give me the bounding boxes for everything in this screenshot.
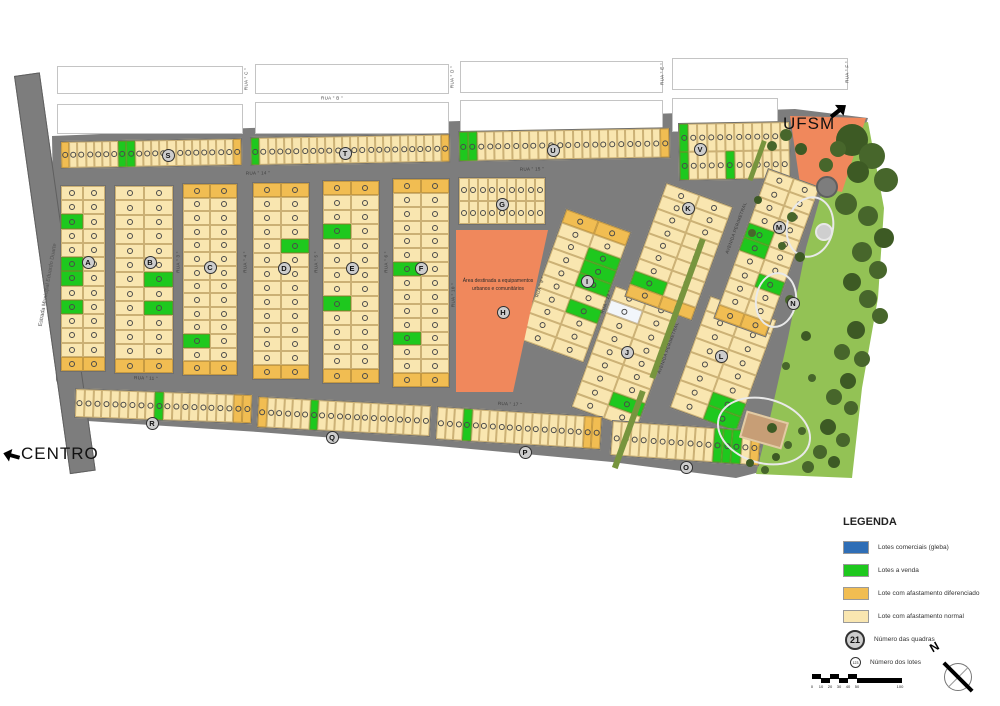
lot-number-icon <box>292 369 298 375</box>
lot-number-icon <box>653 140 659 146</box>
lot <box>183 239 210 253</box>
lot-number-icon <box>156 363 162 369</box>
lot <box>734 151 744 179</box>
lot <box>83 300 105 314</box>
lot-number-icon <box>606 348 614 356</box>
lot-number-icon <box>480 210 486 216</box>
lot-number-icon <box>127 262 133 268</box>
lot <box>323 325 351 339</box>
block-D <box>252 182 310 380</box>
lot <box>323 340 351 354</box>
lot <box>323 210 351 224</box>
lot-number-icon <box>518 210 524 216</box>
lot-number-icon <box>672 204 680 212</box>
lot-number-icon <box>334 315 340 321</box>
lot <box>210 320 237 334</box>
lot-number-icon <box>750 244 758 252</box>
lot-number-icon <box>531 142 537 148</box>
tree <box>840 373 856 389</box>
tree <box>847 161 869 183</box>
lot-number-icon <box>726 312 734 320</box>
lot-number-icon <box>264 369 270 375</box>
street-label: RUA " 11 " <box>134 375 158 381</box>
lot-number-icon <box>165 403 171 409</box>
lot-number-icon <box>376 146 382 152</box>
lot <box>253 323 281 337</box>
lot-number-icon <box>489 187 495 193</box>
lot-number-icon <box>681 163 687 169</box>
lot-number-icon <box>194 242 200 248</box>
lot-number-icon <box>302 147 308 153</box>
lot <box>469 201 479 224</box>
lot-number-icon <box>351 147 357 153</box>
lot-number-icon <box>659 438 665 444</box>
lot-number-icon <box>182 404 188 410</box>
lot <box>83 229 105 243</box>
future-block <box>460 61 663 93</box>
quadra-marker: O <box>680 461 693 474</box>
lot <box>253 267 281 281</box>
lot <box>253 183 281 197</box>
lot-number-icon <box>200 404 206 410</box>
street-label: RUA " 10 " <box>451 283 456 307</box>
lot-number-icon <box>244 406 250 412</box>
lot-number-icon <box>404 280 410 286</box>
lot <box>591 417 602 449</box>
lot-number-icon <box>800 186 808 194</box>
lot-number-icon <box>507 424 513 430</box>
lot <box>144 330 173 344</box>
lot-number-icon <box>432 225 438 231</box>
lot-number-icon <box>717 134 723 140</box>
lot-number-icon <box>755 231 763 239</box>
lot-number-icon <box>91 332 97 338</box>
lot <box>242 395 252 423</box>
lot-number-icon <box>292 299 298 305</box>
lot-number-icon <box>221 270 227 276</box>
street-label: RUA " 6 " <box>384 251 389 272</box>
lot-number-icon <box>334 200 340 206</box>
lot-number-icon <box>513 142 519 148</box>
lot-number-icon <box>432 211 438 217</box>
lot <box>253 309 281 323</box>
lot-number-icon <box>404 335 410 341</box>
lot-number-icon <box>711 333 719 341</box>
lot-number-icon <box>91 204 97 210</box>
lot-number-icon <box>727 134 733 140</box>
lot-number-icon <box>318 147 324 153</box>
future-block <box>255 102 449 134</box>
lot <box>351 325 379 339</box>
lot-number-icon <box>404 294 410 300</box>
lot-number-icon <box>567 244 575 252</box>
lot <box>323 224 351 238</box>
quadra-marker: G <box>496 198 509 211</box>
tree <box>847 321 865 339</box>
lot <box>421 373 449 387</box>
block-A <box>60 185 106 372</box>
lot-number-icon <box>432 294 438 300</box>
lot-number-icon <box>705 442 711 448</box>
lot <box>253 281 281 295</box>
lot-number-icon <box>194 215 200 221</box>
lot-number-icon <box>261 148 267 154</box>
legend-title: LEGENDA <box>843 516 1000 528</box>
lot-number-icon <box>221 229 227 235</box>
block-R <box>74 388 253 424</box>
lot-number-icon <box>562 257 570 265</box>
lot <box>323 181 351 195</box>
lot-number-icon <box>127 219 133 225</box>
lot <box>323 369 351 383</box>
lot-number-icon <box>194 311 200 317</box>
lot-number-icon <box>470 210 476 216</box>
lot <box>210 361 237 375</box>
lot <box>421 179 449 193</box>
block-E <box>322 180 380 384</box>
lot <box>393 373 421 387</box>
lot-number-icon <box>292 313 298 319</box>
lot-number-icon <box>736 285 744 293</box>
lot <box>281 351 309 365</box>
legend-item-label: Lotes a venda <box>878 567 919 574</box>
lot-number-icon <box>234 149 240 155</box>
lot-number-icon <box>623 400 631 408</box>
lot-number-icon <box>422 418 428 424</box>
lot-number-icon <box>194 365 200 371</box>
north-arrow: N <box>930 640 1000 700</box>
lot <box>689 152 699 180</box>
lot-number-icon <box>776 254 784 262</box>
block-U <box>458 127 671 162</box>
tree <box>834 344 850 360</box>
lot <box>61 300 83 314</box>
lot-number-icon <box>773 161 779 167</box>
lot-number-icon <box>327 147 333 153</box>
lot-number-icon <box>91 304 97 310</box>
lot-number-icon <box>201 149 207 155</box>
lot-number-icon <box>221 242 227 248</box>
legend-item-setback-diff: Lote com afastamento diferenciado <box>843 582 1000 605</box>
lot-number-icon <box>264 229 270 235</box>
tree <box>761 466 769 474</box>
scale-segment <box>857 679 902 683</box>
lot-number-icon <box>690 389 698 397</box>
lot-number-icon <box>708 134 714 140</box>
lot-number-icon <box>645 279 653 287</box>
lot-number-icon <box>718 162 724 168</box>
lot <box>183 348 210 362</box>
lot-number-icon <box>571 333 579 341</box>
lot-number-icon <box>681 135 687 141</box>
lot-number-icon <box>706 347 714 355</box>
lot-number-icon <box>69 304 75 310</box>
lot-number-icon <box>127 291 133 297</box>
legend-item-label: Lote com afastamento normal <box>878 613 964 620</box>
lot-number-icon <box>464 422 470 428</box>
lot <box>421 193 449 207</box>
street-label: RUA " 3 " <box>176 251 181 272</box>
lot-number-icon <box>404 225 410 231</box>
lot-number-icon <box>194 352 200 358</box>
lot-number-icon <box>177 150 183 156</box>
lot <box>323 296 351 310</box>
lot <box>115 287 144 301</box>
lot-number-icon <box>641 437 647 443</box>
lot-number-icon <box>362 329 368 335</box>
lot-number-icon <box>432 197 438 203</box>
lot-number-icon <box>620 308 628 316</box>
lot-number-icon <box>334 373 340 379</box>
quadra-number-icon: 21 <box>845 630 865 650</box>
lot <box>61 186 83 200</box>
lot <box>115 186 144 200</box>
lot <box>183 225 210 239</box>
lot <box>281 365 309 379</box>
lot-number-icon <box>77 400 83 406</box>
lot-number-icon <box>221 201 227 207</box>
lot-number-icon <box>397 416 403 422</box>
lot-number-icon <box>264 215 270 221</box>
lot <box>210 211 237 225</box>
lot <box>421 234 449 248</box>
lot-number-icon <box>404 377 410 383</box>
lot <box>707 123 717 151</box>
lot-number-icon <box>264 187 270 193</box>
lot-number-icon <box>469 143 475 149</box>
cul-de-sac <box>816 176 838 198</box>
lot-number-icon <box>156 334 162 340</box>
lot-number-icon <box>294 411 300 417</box>
lot <box>210 239 237 253</box>
lot <box>707 151 717 179</box>
lot-number-icon <box>360 146 366 152</box>
scale-tick-label: 50 <box>855 684 859 689</box>
lot <box>83 343 105 357</box>
tree <box>828 456 840 468</box>
area-h-text-line1: Área destinada a equipamentos <box>463 278 534 284</box>
lot-number-icon <box>447 421 453 427</box>
lot-number-icon <box>362 373 368 379</box>
lot-number-icon <box>69 290 75 296</box>
lot <box>115 258 144 272</box>
lot-number-icon <box>292 355 298 361</box>
tree <box>872 308 888 324</box>
lot-number-icon <box>701 229 709 237</box>
tree <box>767 423 777 433</box>
legend-item-commercial: Lotes comerciais (gleba) <box>843 536 1000 559</box>
lot <box>459 201 469 224</box>
lot-number-icon <box>654 254 662 262</box>
lot-number-icon <box>221 215 227 221</box>
lot-number-icon <box>264 327 270 333</box>
quadra-marker: U <box>547 144 560 157</box>
lot <box>83 328 105 342</box>
lot-number-icon <box>334 228 340 234</box>
lot <box>281 295 309 309</box>
quadra-marker: L <box>715 350 728 363</box>
lot <box>516 201 526 224</box>
lot-number-icon <box>127 320 133 326</box>
quadra-marker: A <box>82 256 95 269</box>
lot-number-icon: 123 <box>850 657 861 668</box>
lot-number-icon <box>478 143 484 149</box>
lot-number-icon <box>221 338 227 344</box>
lot <box>351 224 379 238</box>
lot-number-icon <box>461 187 467 193</box>
lot-number-icon <box>404 308 410 314</box>
lot-number-icon <box>194 324 200 330</box>
lot-number-icon <box>695 375 703 383</box>
future-block <box>57 66 243 94</box>
lot <box>61 343 83 357</box>
quadra-marker: C <box>204 261 217 274</box>
lot <box>83 200 105 214</box>
lot-number-icon <box>311 412 317 418</box>
lot-number-icon <box>264 271 270 277</box>
lot-number-icon <box>404 197 410 203</box>
lot-number-icon <box>127 363 133 369</box>
lot <box>210 348 237 362</box>
lot-number-icon <box>194 270 200 276</box>
lot <box>743 123 753 151</box>
lot-number-icon <box>185 150 191 156</box>
lot-number-icon <box>194 201 200 207</box>
lot-number-icon <box>94 401 100 407</box>
lot-number-icon <box>745 162 751 168</box>
lot <box>183 184 210 198</box>
lot-number-icon <box>537 210 543 216</box>
lot <box>144 301 173 315</box>
lot <box>323 354 351 368</box>
lot-number-icon <box>751 321 759 329</box>
lot-number-icon <box>690 163 696 169</box>
lot-number-icon <box>264 299 270 305</box>
lot-number-icon <box>292 243 298 249</box>
lot-number-icon <box>362 228 368 234</box>
lot <box>393 290 421 304</box>
lot <box>281 323 309 337</box>
lot-number-icon <box>461 143 467 149</box>
quadra-marker: F <box>415 262 428 275</box>
lot-number-icon <box>632 436 638 442</box>
lot-number-icon <box>368 146 374 152</box>
lot-number-icon <box>650 267 658 275</box>
lot-number-icon <box>746 258 754 266</box>
lot-number-icon <box>557 270 565 278</box>
lot-number-icon <box>745 134 751 140</box>
lot-number-icon <box>91 275 97 281</box>
lot <box>393 276 421 290</box>
lot-number-icon <box>592 141 598 147</box>
lot-number-icon <box>480 187 486 193</box>
lot-number-icon <box>509 187 515 193</box>
lot-number-icon <box>69 190 75 196</box>
lot-number-icon <box>69 233 75 239</box>
lot <box>421 248 449 262</box>
lot <box>351 340 379 354</box>
lot-number-icon <box>432 322 438 328</box>
lot-number-icon <box>539 142 545 148</box>
lot <box>323 282 351 296</box>
lot-number-icon <box>566 142 572 148</box>
lot-number-icon <box>362 415 368 421</box>
lot-number-icon <box>362 344 368 350</box>
lot-number-icon <box>362 272 368 278</box>
lot-number-icon <box>194 229 200 235</box>
lot-number-icon <box>264 341 270 347</box>
lot-number-icon <box>128 151 134 157</box>
legend-item-label: Número dos lotes <box>870 659 921 666</box>
lot-number-icon <box>567 428 573 434</box>
quadra-marker: Q <box>326 431 339 444</box>
scale-segment <box>830 674 839 678</box>
lot-number-icon <box>736 134 742 140</box>
lot-number-icon <box>194 338 200 344</box>
lot-number-icon <box>442 145 448 151</box>
lot <box>351 354 379 368</box>
lot <box>61 314 83 328</box>
lot-number-icon <box>524 425 530 431</box>
lot <box>183 198 210 212</box>
tree <box>802 461 814 473</box>
lot-number-icon <box>136 151 142 157</box>
block-C <box>182 183 238 376</box>
lot <box>144 359 173 373</box>
setback-normal-swatch <box>843 610 869 623</box>
lot <box>61 328 83 342</box>
lot-number-icon <box>156 348 162 354</box>
lot-number-icon <box>596 375 604 383</box>
lot-number-icon <box>138 402 144 408</box>
lot-number-icon <box>362 301 368 307</box>
tree <box>767 141 777 151</box>
lot-number-icon <box>613 435 619 441</box>
lot-number-icon <box>576 429 582 435</box>
lot-number-icon <box>715 442 721 448</box>
lot-number-icon <box>677 192 685 200</box>
lot-number-icon <box>609 141 615 147</box>
lot <box>253 351 281 365</box>
lot <box>281 309 309 323</box>
lot-number-icon <box>616 322 624 330</box>
lot-number-icon <box>393 146 399 152</box>
scale-segment <box>848 674 857 678</box>
lot-number-icon <box>79 152 85 158</box>
quadra-marker: N <box>787 297 800 310</box>
lot-number-icon <box>417 145 423 151</box>
quadra-marker: I <box>581 275 594 288</box>
quadra-marker: P <box>519 446 532 459</box>
legend-item-for-sale: Lotes a venda <box>843 559 1000 582</box>
lot <box>183 307 210 321</box>
lot <box>144 215 173 229</box>
lot-number-icon <box>221 352 227 358</box>
lot-number-icon <box>302 411 308 417</box>
lot-number-icon <box>362 358 368 364</box>
lot-number-icon <box>69 219 75 225</box>
lot-number-icon <box>426 145 432 151</box>
lot <box>351 369 379 383</box>
lot-number-icon <box>292 229 298 235</box>
lot-number-icon <box>455 421 461 427</box>
lot-number-icon <box>404 183 410 189</box>
lot-number-icon <box>194 188 200 194</box>
lot-number-icon <box>499 187 505 193</box>
lot <box>253 211 281 225</box>
lot-number-icon <box>264 243 270 249</box>
lot <box>183 211 210 225</box>
